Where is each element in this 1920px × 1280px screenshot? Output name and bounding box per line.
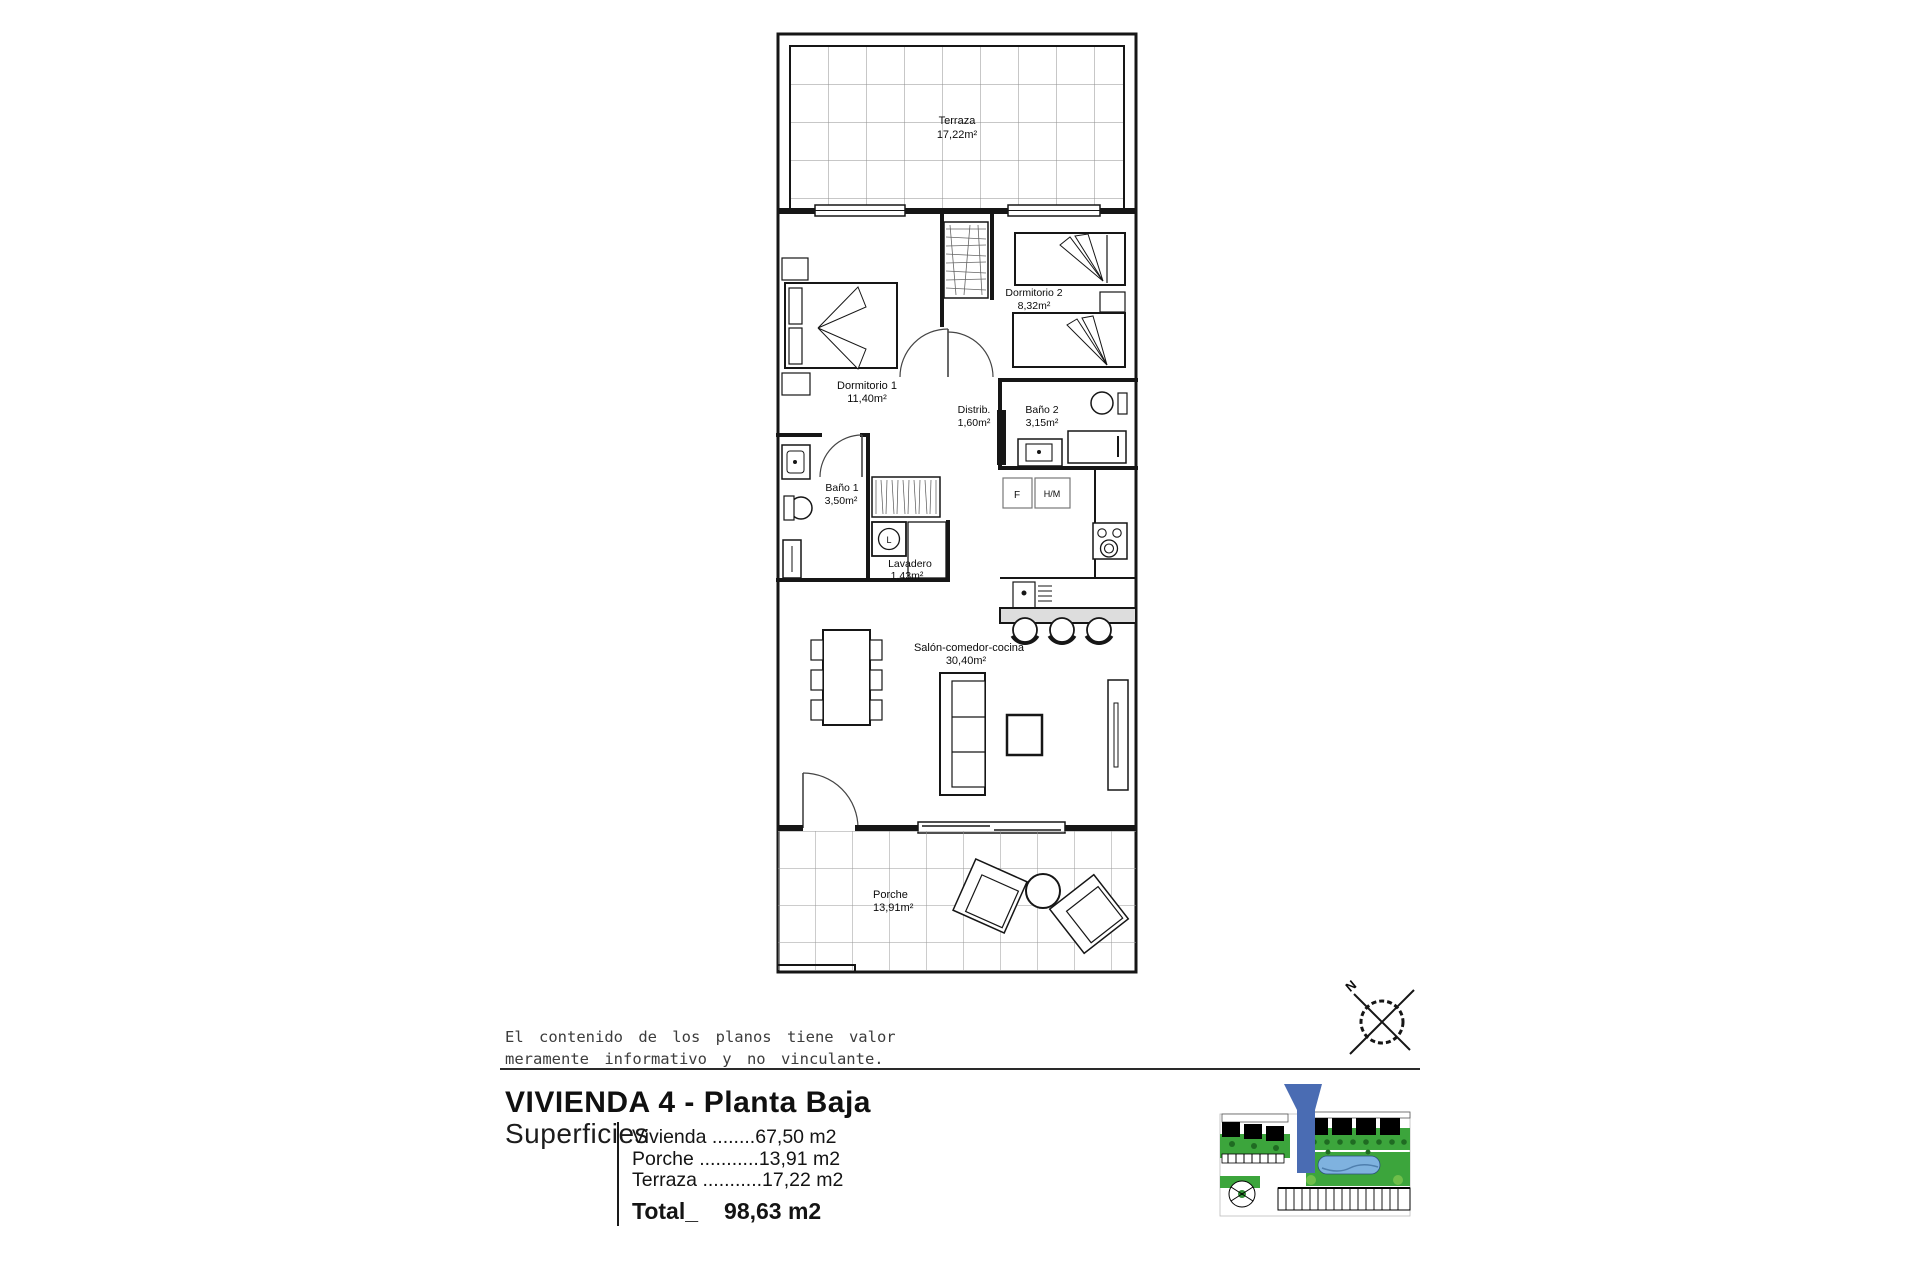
bathroom2-door-leaf: [997, 410, 1006, 465]
room-label-bano1: Baño 1: [825, 482, 858, 494]
divider-line: [500, 1068, 1420, 1070]
nightstand: [1100, 292, 1125, 312]
coffee-table: [1007, 715, 1042, 755]
closet: [872, 477, 940, 517]
round-table: [1026, 874, 1060, 908]
sofa: [940, 673, 985, 795]
room-area-distribuidor: 1,60m²: [958, 417, 991, 429]
surface-leader: ...........: [697, 1169, 762, 1191]
wall: [778, 825, 803, 831]
surface-label: Vivienda: [632, 1126, 706, 1148]
dining-chair: [870, 670, 882, 690]
tv-sideboard: [1108, 680, 1128, 790]
surfaces-list: Vivienda ........67,50 m2 Porche .......…: [632, 1127, 843, 1222]
washer-label: L: [886, 535, 891, 545]
surface-row-porche: Porche ...........13,91 m2: [632, 1149, 843, 1171]
room-area-bano1: 3,50m²: [825, 495, 858, 507]
total-label: Total_: [632, 1198, 698, 1224]
single-bed-1: [1015, 233, 1125, 285]
nightstand: [782, 258, 808, 280]
surface-leader: ...........: [694, 1148, 759, 1170]
dining-table: [811, 630, 882, 725]
site-plan-thumbnail: [1218, 1080, 1414, 1230]
surface-label: Terraza: [632, 1169, 697, 1191]
bar-stool: [1049, 618, 1075, 644]
bar-stool: [1012, 618, 1038, 644]
parking-row: [1278, 1188, 1410, 1210]
floor-plan: L: [770, 25, 1150, 980]
room-label-dormitorio1: Dormitorio 1: [837, 380, 897, 392]
room-label-porche: Porche: [873, 889, 908, 901]
double-bed: [785, 283, 897, 369]
disclaimer-line2: meramente informativo y no vinculante.: [505, 1048, 1025, 1070]
surfaces-heading: Superficies: [505, 1118, 649, 1150]
disclaimer-text: El contenido de los planos tiene valor m…: [505, 1026, 1025, 1070]
wall: [855, 825, 918, 831]
roundabout: [1229, 1181, 1255, 1207]
surface-label: Porche: [632, 1148, 694, 1170]
room-area-lavadero: 1,43m²: [891, 570, 924, 582]
window: [815, 205, 905, 216]
room-area-bano2: 3,15m²: [1026, 417, 1059, 429]
dining-chair: [811, 670, 823, 690]
single-bed-2: [1013, 313, 1125, 367]
dining-chair: [870, 700, 882, 720]
room-area-porche: 13,91m²: [873, 902, 914, 914]
disclaimer-line1: El contenido de los planos tiene valor: [505, 1026, 1025, 1048]
compass-rose: N: [1338, 973, 1468, 1083]
room-label-dormitorio2: Dormitorio 2: [1005, 287, 1062, 299]
room-area-dormitorio1: 11,40m²: [847, 393, 887, 405]
wall: [1065, 825, 1136, 831]
wardrobe: [944, 222, 988, 298]
surfaces-total: Total_98,63 m2: [632, 1201, 843, 1223]
page-title: VIVIENDA 4 - Planta Baja: [505, 1086, 871, 1120]
surface-value: 13,91 m2: [759, 1148, 840, 1170]
plan-sheet: L: [0, 0, 1920, 1280]
terrace-tiles: [790, 46, 1124, 210]
room-label-salon: Salón-comedor-cocina: [914, 642, 1025, 654]
total-value: 98,63 m2: [724, 1198, 821, 1224]
fridge-label: F: [1014, 490, 1020, 501]
surface-leader: ........: [706, 1126, 755, 1148]
room-area-dormitorio2: 8,32m²: [1018, 300, 1051, 312]
surface-row-vivienda: Vivienda ........67,50 m2: [632, 1127, 843, 1149]
surface-value: 67,50 m2: [755, 1126, 836, 1148]
surface-value: 17,22 m2: [762, 1169, 843, 1191]
bar-stool: [1086, 618, 1112, 644]
north-label: N: [1342, 977, 1359, 995]
room-label-lavadero: Lavadero: [888, 558, 932, 570]
room-area-terraza: 17,22m²: [937, 129, 978, 141]
surfaces-divider: [617, 1122, 619, 1226]
dining-chair: [811, 700, 823, 720]
toilet-icon: [1091, 392, 1113, 414]
window: [1008, 205, 1100, 216]
surface-row-terraza: Terraza ...........17,22 m2: [632, 1170, 843, 1192]
room-label-bano2: Baño 2: [1025, 404, 1058, 416]
dining-chair: [811, 640, 823, 660]
stove-icon: [1093, 523, 1127, 559]
room-label-terraza: Terraza: [939, 115, 977, 127]
room-label-distribuidor: Distrib.: [958, 404, 991, 416]
room-area-salon: 30,40m²: [946, 655, 987, 667]
nightstand: [782, 373, 810, 395]
dining-chair: [870, 640, 882, 660]
oven-label: H/M: [1044, 489, 1061, 499]
